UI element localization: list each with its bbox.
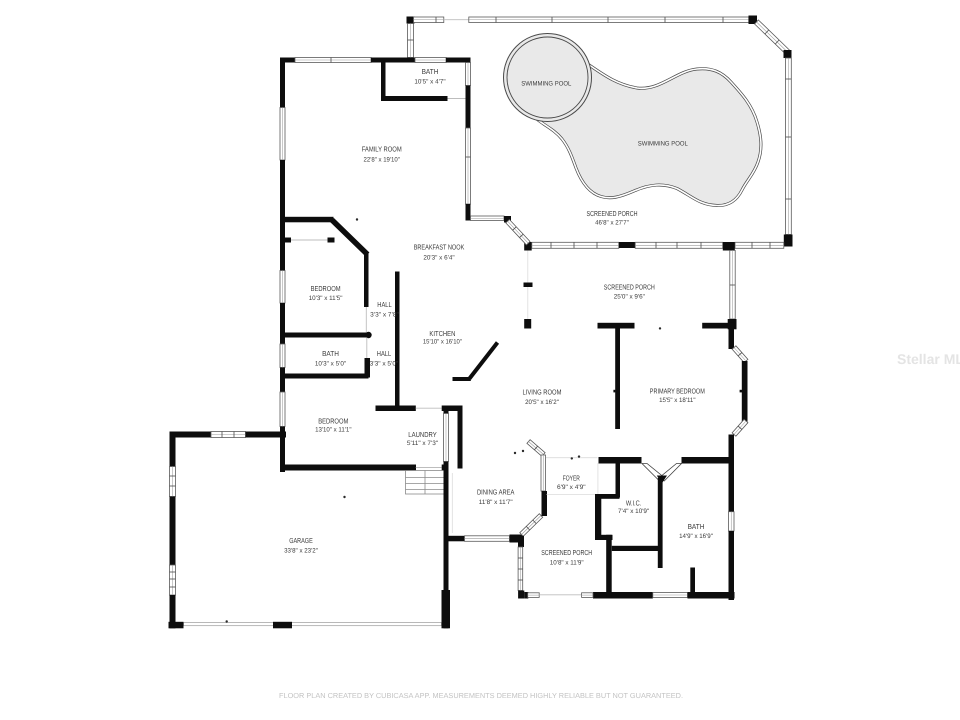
- svg-text:13'10" x 11'1": 13'10" x 11'1": [315, 426, 351, 433]
- svg-text:LAUNDRY: LAUNDRY: [408, 430, 437, 439]
- svg-text:BATH: BATH: [322, 349, 339, 358]
- svg-text:20'3" x 6'4": 20'3" x 6'4": [423, 255, 454, 262]
- svg-text:HALL: HALL: [377, 300, 391, 309]
- svg-text:SWIMMING POOL: SWIMMING POOL: [521, 80, 571, 87]
- svg-text:BREAKFAST NOOK: BREAKFAST NOOK: [414, 243, 465, 252]
- svg-text:KITCHEN: KITCHEN: [429, 329, 455, 338]
- svg-text:15'5" x 18'11": 15'5" x 18'11": [659, 397, 695, 404]
- svg-text:3'3" x 7'8": 3'3" x 7'8": [370, 312, 399, 319]
- svg-text:BEDROOM: BEDROOM: [311, 284, 341, 293]
- svg-text:3'3" x 5'0": 3'3" x 5'0": [370, 361, 399, 368]
- svg-text:GARAGE: GARAGE: [289, 536, 313, 545]
- svg-text:BEDROOM: BEDROOM: [318, 416, 348, 425]
- svg-text:SCREENED PORCH: SCREENED PORCH: [604, 283, 655, 292]
- svg-text:LIVING ROOM: LIVING ROOM: [523, 388, 562, 397]
- svg-text:BATH: BATH: [422, 67, 439, 76]
- svg-text:10'8" x 11'9": 10'8" x 11'9": [550, 559, 584, 566]
- svg-text:22'8" x 19'10": 22'8" x 19'10": [364, 157, 400, 164]
- svg-text:6'9" x 4'9": 6'9" x 4'9": [557, 484, 586, 491]
- svg-text:FLOOR PLAN CREATED BY CUBICASA: FLOOR PLAN CREATED BY CUBICASA APP. MEAS…: [279, 691, 683, 700]
- svg-text:5'11" x 7'3": 5'11" x 7'3": [407, 440, 438, 447]
- svg-text:7'4" x 10'9": 7'4" x 10'9": [618, 508, 649, 515]
- svg-text:15'10" x 16'10": 15'10" x 16'10": [423, 339, 462, 346]
- svg-text:SCREENED PORCH: SCREENED PORCH: [587, 209, 638, 218]
- svg-text:25'0" x 9'6": 25'0" x 9'6": [614, 294, 645, 301]
- svg-text:HALL: HALL: [377, 349, 391, 358]
- svg-text:W.I.C.: W.I.C.: [626, 499, 641, 508]
- svg-text:20'5" x 16'2": 20'5" x 16'2": [525, 399, 559, 406]
- svg-text:46'8" x 27'7": 46'8" x 27'7": [595, 220, 629, 227]
- svg-text:BATH: BATH: [688, 522, 705, 531]
- svg-text:SCREENED PORCH: SCREENED PORCH: [541, 548, 592, 557]
- svg-text:PRIMARY BEDROOM: PRIMARY BEDROOM: [650, 386, 705, 395]
- svg-text:14'9" x 16'9": 14'9" x 16'9": [679, 533, 713, 540]
- svg-text:DINING AREA: DINING AREA: [477, 488, 515, 497]
- svg-text:FOYER: FOYER: [563, 473, 580, 482]
- svg-text:10'3" x 11'5": 10'3" x 11'5": [309, 295, 343, 302]
- svg-text:SWIMMING POOL: SWIMMING POOL: [638, 140, 688, 147]
- svg-text:11'8" x 11'7": 11'8" x 11'7": [479, 499, 513, 506]
- svg-text:10'5" x 4'7": 10'5" x 4'7": [414, 79, 445, 86]
- svg-text:Stellar MLS: Stellar MLS: [897, 351, 960, 367]
- svg-text:10'3" x 5'0": 10'3" x 5'0": [315, 361, 346, 368]
- svg-text:33'8" x 23'2": 33'8" x 23'2": [284, 548, 318, 555]
- svg-text:FAMILY ROOM: FAMILY ROOM: [362, 145, 402, 154]
